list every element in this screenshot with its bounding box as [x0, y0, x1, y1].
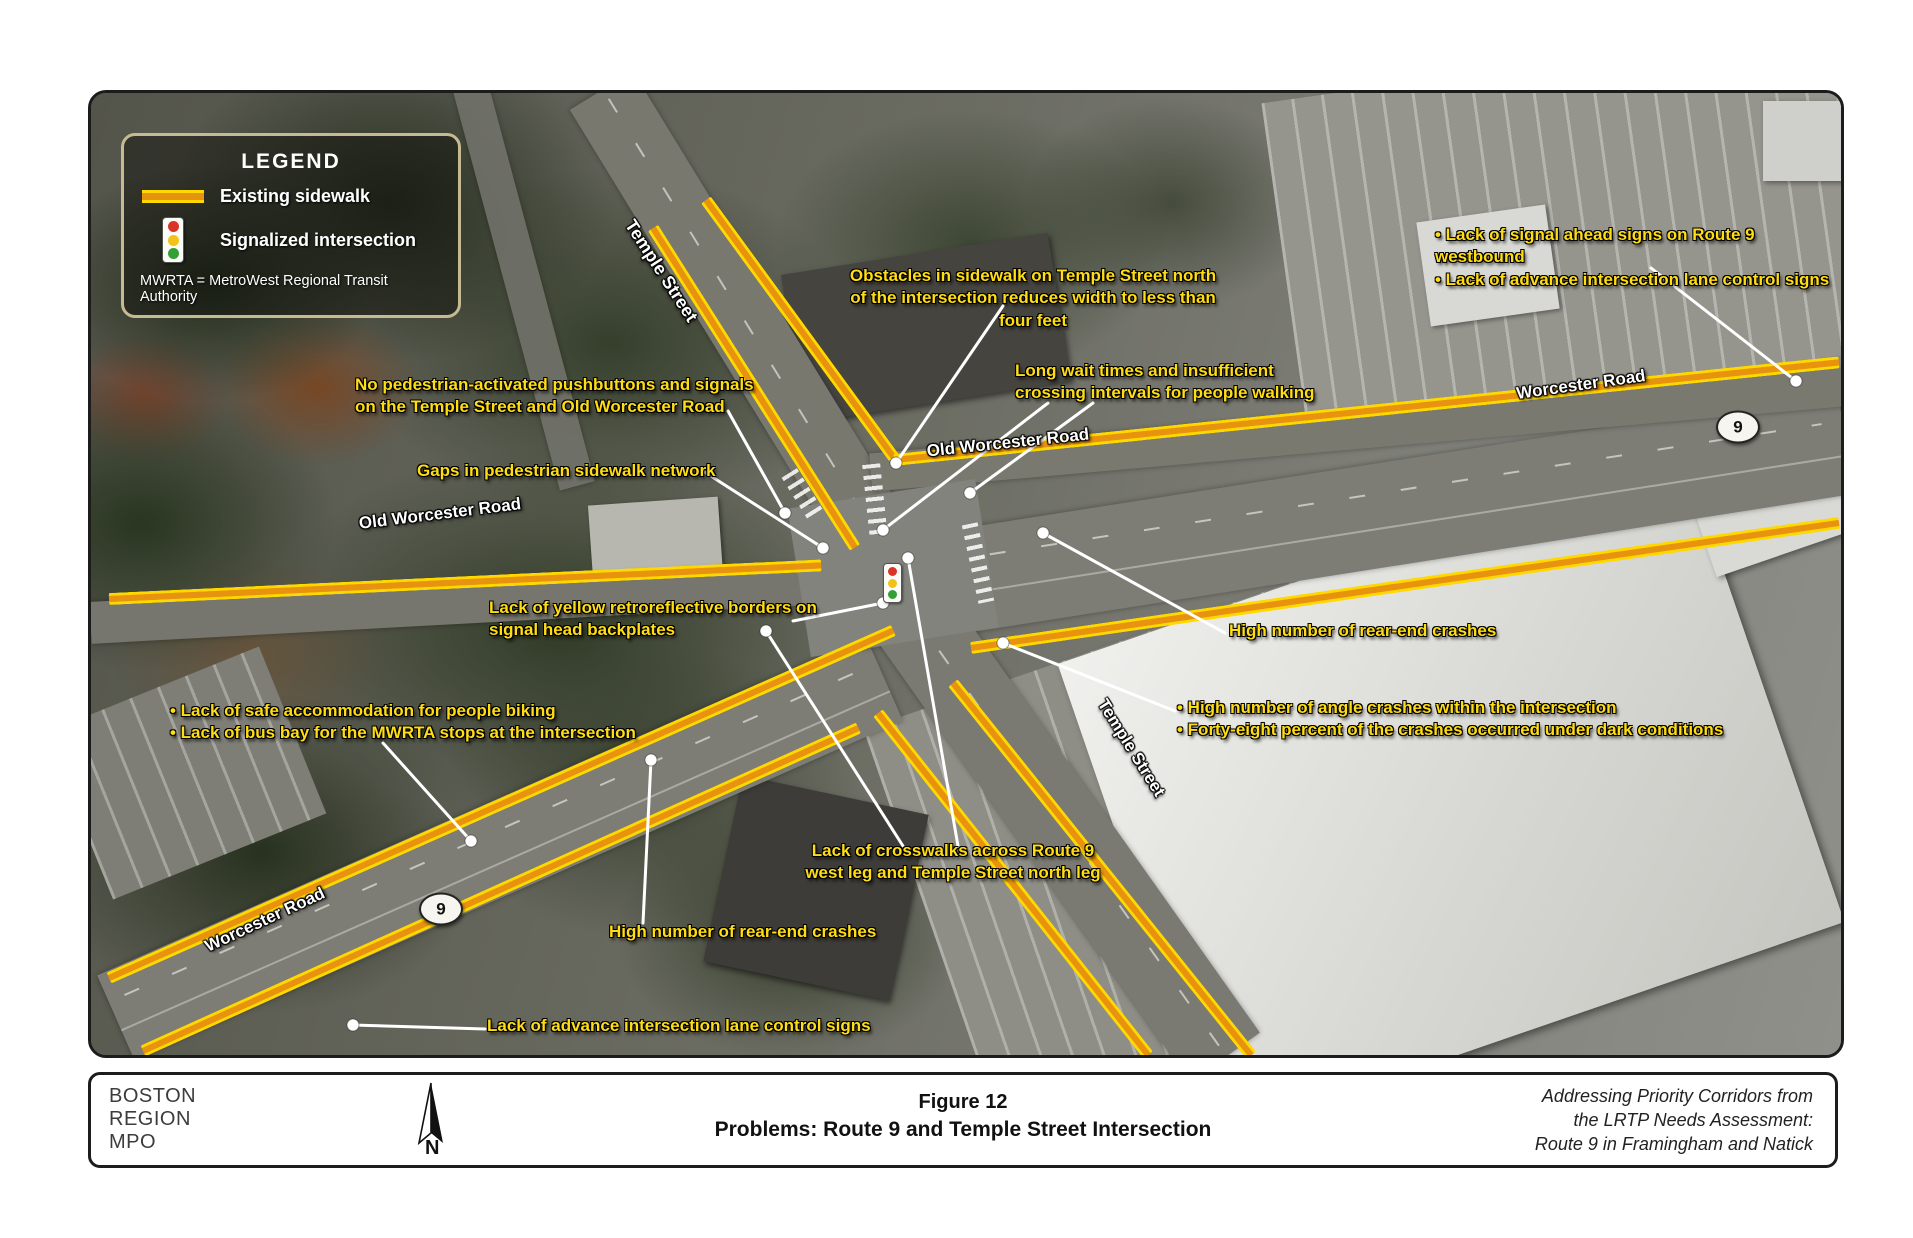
signal-yellow-light: [888, 579, 897, 588]
legend-item-signalized-intersection: Signalized intersection: [140, 217, 442, 263]
route-9-shield-west: 9: [419, 893, 463, 926]
signal-red-light: [888, 567, 897, 576]
annotation-biking-bus-bay: • Lack of safe accommodation for people …: [170, 700, 636, 745]
annotation-retroreflective-borders: Lack of yellow retroreflective borders o…: [489, 597, 817, 642]
traffic-signal-icon: [140, 217, 206, 263]
legend: LEGEND Existing sidewalk Signalized inte…: [121, 133, 461, 318]
legend-item-label: Existing sidewalk: [220, 186, 370, 207]
rooftop-far-northeast: [1763, 101, 1844, 181]
annotation-angle-crashes: • High number of angle crashes within th…: [1177, 697, 1723, 742]
route-9-shield-east: 9: [1716, 411, 1760, 444]
legend-item-existing-sidewalk: Existing sidewalk: [140, 186, 442, 207]
sidewalk-line-icon: [140, 190, 206, 203]
building-south: [703, 775, 928, 1000]
annotation-signal-ahead-signs: • Lack of signal ahead signs on Route 9 …: [1435, 224, 1841, 291]
figure-footer: BOSTON REGION MPO N Figure 12 Problems: …: [88, 1072, 1838, 1168]
annotation-rear-end-crashes-west: High number of rear-end crashes: [609, 921, 876, 943]
legend-title: LEGEND: [140, 150, 442, 174]
figure-page: Temple Street Old Worcester Road Old Wor…: [0, 0, 1913, 1238]
annotation-rear-end-crashes-east: High number of rear-end crashes: [1229, 620, 1496, 642]
aerial-map: Temple Street Old Worcester Road Old Wor…: [88, 90, 1844, 1058]
annotation-obstacles-sidewalk: Obstacles in sidewalk on Temple Street n…: [833, 265, 1233, 332]
annotation-sidewalk-gaps: Gaps in pedestrian sidewalk network: [417, 460, 716, 482]
traffic-signal-icon: [883, 563, 902, 603]
legend-note: MWRTA = MetroWest Regional Transit Autho…: [140, 273, 442, 305]
source-note: Addressing Priority Corridors from the L…: [1535, 1085, 1813, 1156]
annotation-crosswalk-gaps: Lack of crosswalks across Route 9 west l…: [773, 840, 1133, 885]
annotation-long-wait-times: Long wait times and insufficient crossin…: [1015, 360, 1314, 405]
signal-green-light: [888, 590, 897, 599]
legend-item-label: Signalized intersection: [220, 230, 416, 251]
annotation-no-pushbuttons: No pedestrian-activated pushbuttons and …: [355, 374, 754, 419]
annotation-advance-lane-signs: Lack of advance intersection lane contro…: [487, 1015, 871, 1037]
